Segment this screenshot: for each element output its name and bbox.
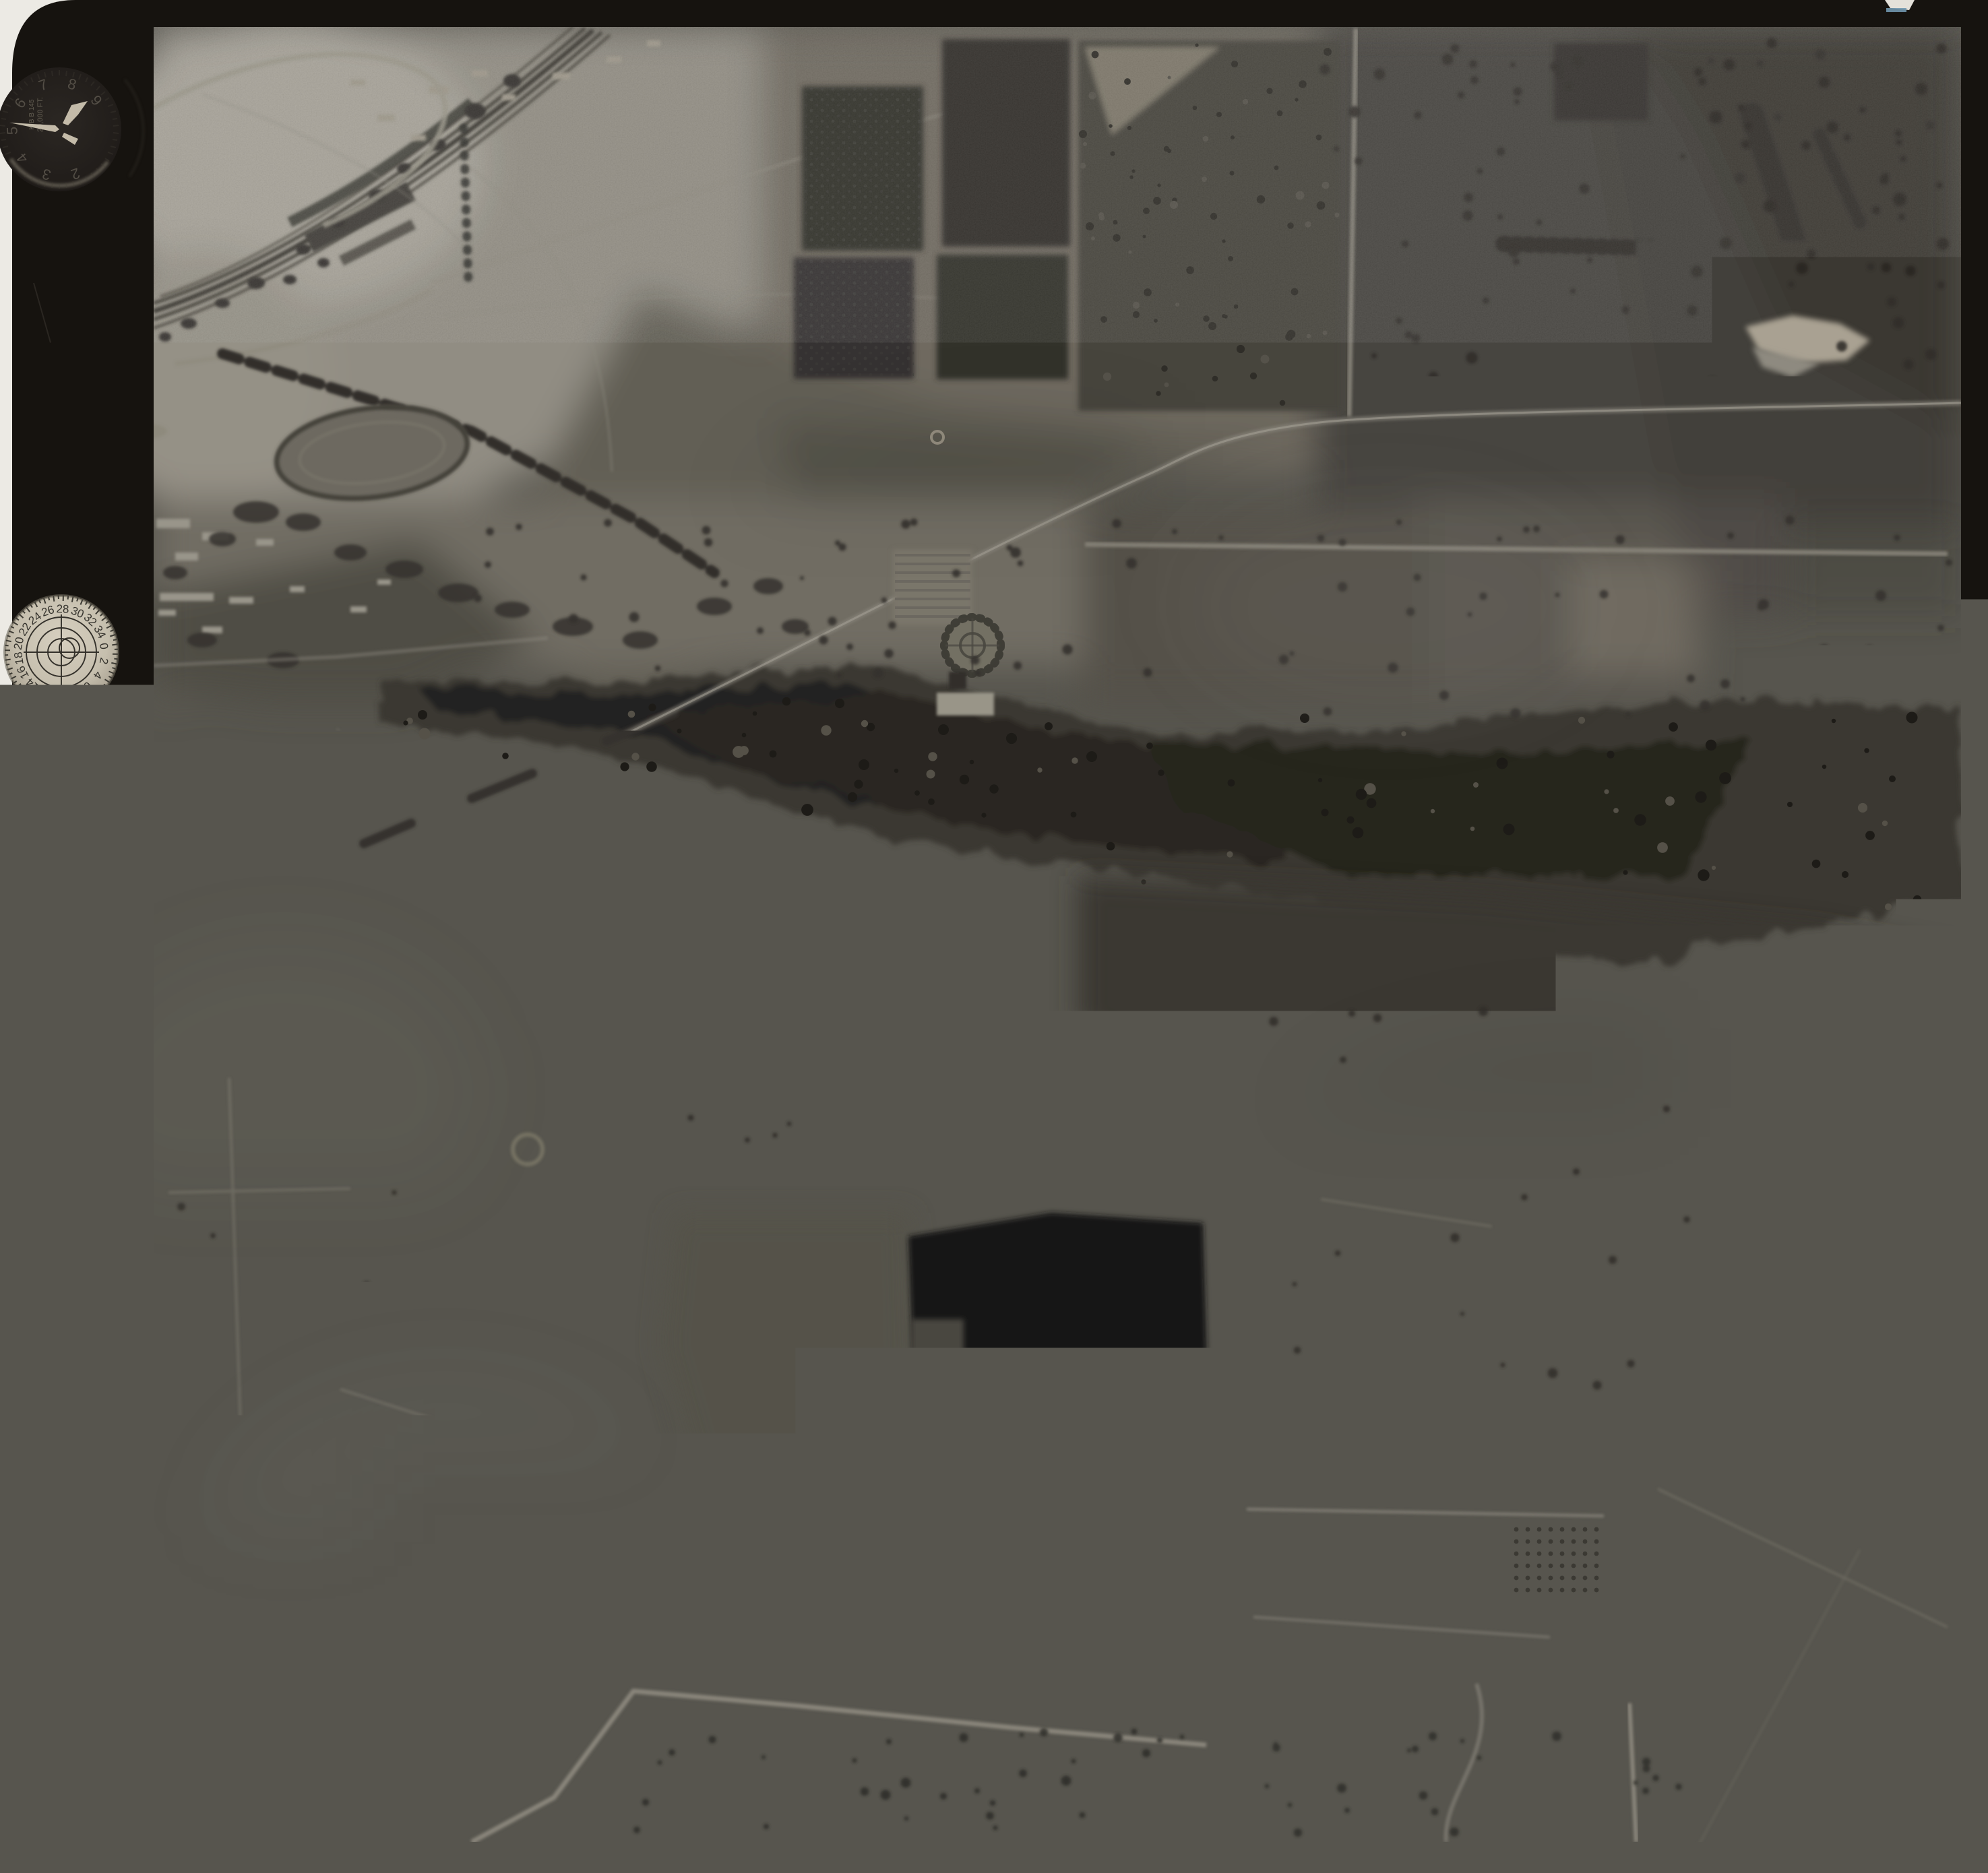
svg-text:WILLIAMSON MANF Cº B: WILLIAMSON MANF Cº B	[46, 1711, 53, 1771]
svg-text:28: 28	[56, 602, 69, 616]
svg-text:5: 5	[3, 126, 20, 135]
svg-text:11: 11	[90, 1201, 106, 1215]
svg-text:4: 4	[33, 1261, 49, 1269]
svg-text:12: 12	[96, 1221, 111, 1236]
svg-text:10: 10	[53, 689, 67, 702]
svg-text:20: 20	[11, 636, 27, 651]
svg-text:8: 8	[33, 1188, 49, 1197]
svg-text:92168: 92168	[11, 1707, 35, 1775]
svg-text:Date: OCT. ’47: Date: OCT. ’47	[94, 1705, 108, 1790]
svg-text:18: 18	[11, 651, 26, 665]
svg-text:1: 1	[90, 1246, 106, 1254]
svg-text:Nº . 118: Nº . 118	[35, 1723, 46, 1759]
svg-text:9: 9	[54, 1183, 69, 1191]
svg-text:3: 3	[54, 1267, 69, 1275]
svg-text:Job Nº: D: Job Nº: D	[65, 1736, 80, 1791]
svg-text:2: 2	[75, 1261, 90, 1269]
